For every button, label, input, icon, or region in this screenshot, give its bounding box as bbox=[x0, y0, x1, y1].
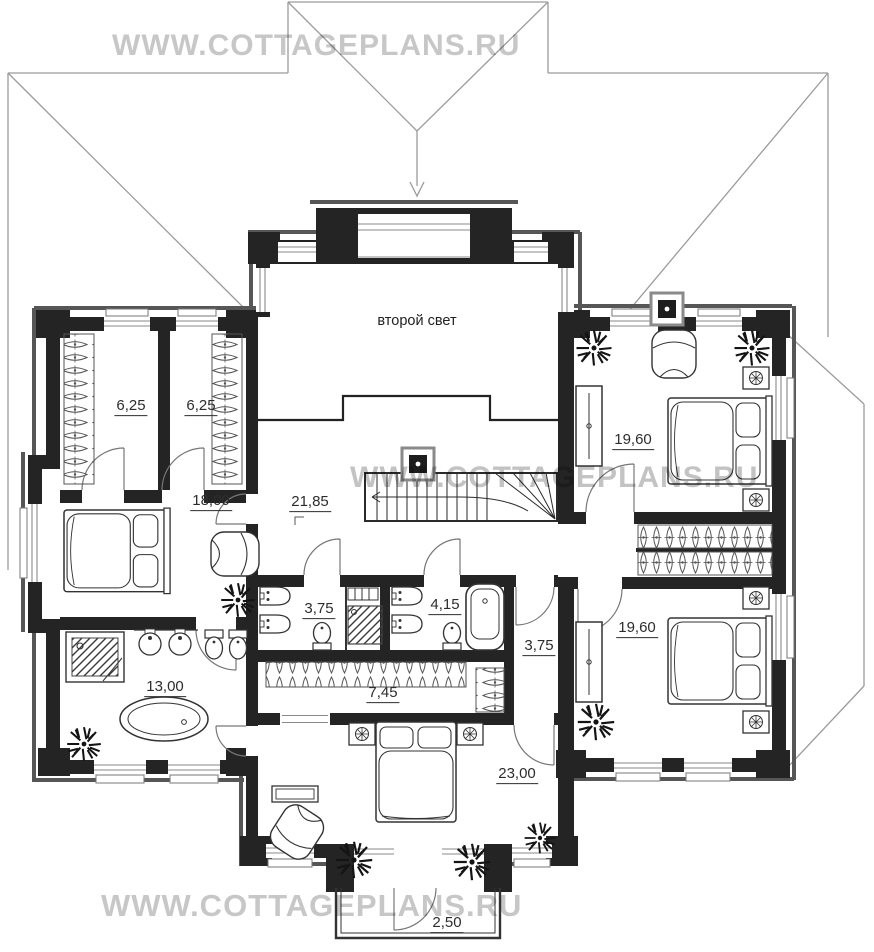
room-area-label-bedroom-bottom: 23,00 bbox=[496, 766, 538, 784]
room-area-label-corridor: 3,75 bbox=[522, 638, 555, 656]
open-space-label: второй свет bbox=[377, 313, 456, 329]
watermark-top: WWW.COTTAGEPLANS.RU bbox=[112, 29, 520, 63]
room-area-label-bathroom-master: 13,00 bbox=[144, 679, 186, 697]
room-area-label-wardrobe-center: 7,45 bbox=[366, 685, 399, 703]
room-area-label-hall: 21,85 bbox=[289, 494, 331, 512]
room-area-label-wardrobe-left: 6,25 bbox=[114, 398, 147, 416]
plan-labels: WWW.COTTAGEPLANS.RU WWW.COTTAGEPLANS.RU … bbox=[0, 0, 874, 952]
watermark-middle: WWW.COTTAGEPLANS.RU bbox=[350, 461, 758, 495]
room-area-label-bedroom-left: 18,00 bbox=[190, 493, 232, 511]
room-area-label-bathroom-right: 4,15 bbox=[428, 597, 461, 615]
room-area-label-balcony: 2,50 bbox=[430, 915, 463, 933]
floor-plan-page: WWW.COTTAGEPLANS.RU WWW.COTTAGEPLANS.RU … bbox=[0, 0, 874, 952]
room-area-label-bedroom-bottom-right: 19,60 bbox=[616, 620, 658, 638]
room-area-label-bedroom-top-right: 19,60 bbox=[612, 432, 654, 450]
room-area-label-bathroom-center: 3,75 bbox=[302, 601, 335, 619]
room-area-label-wardrobe-right: 6,25 bbox=[184, 398, 217, 416]
